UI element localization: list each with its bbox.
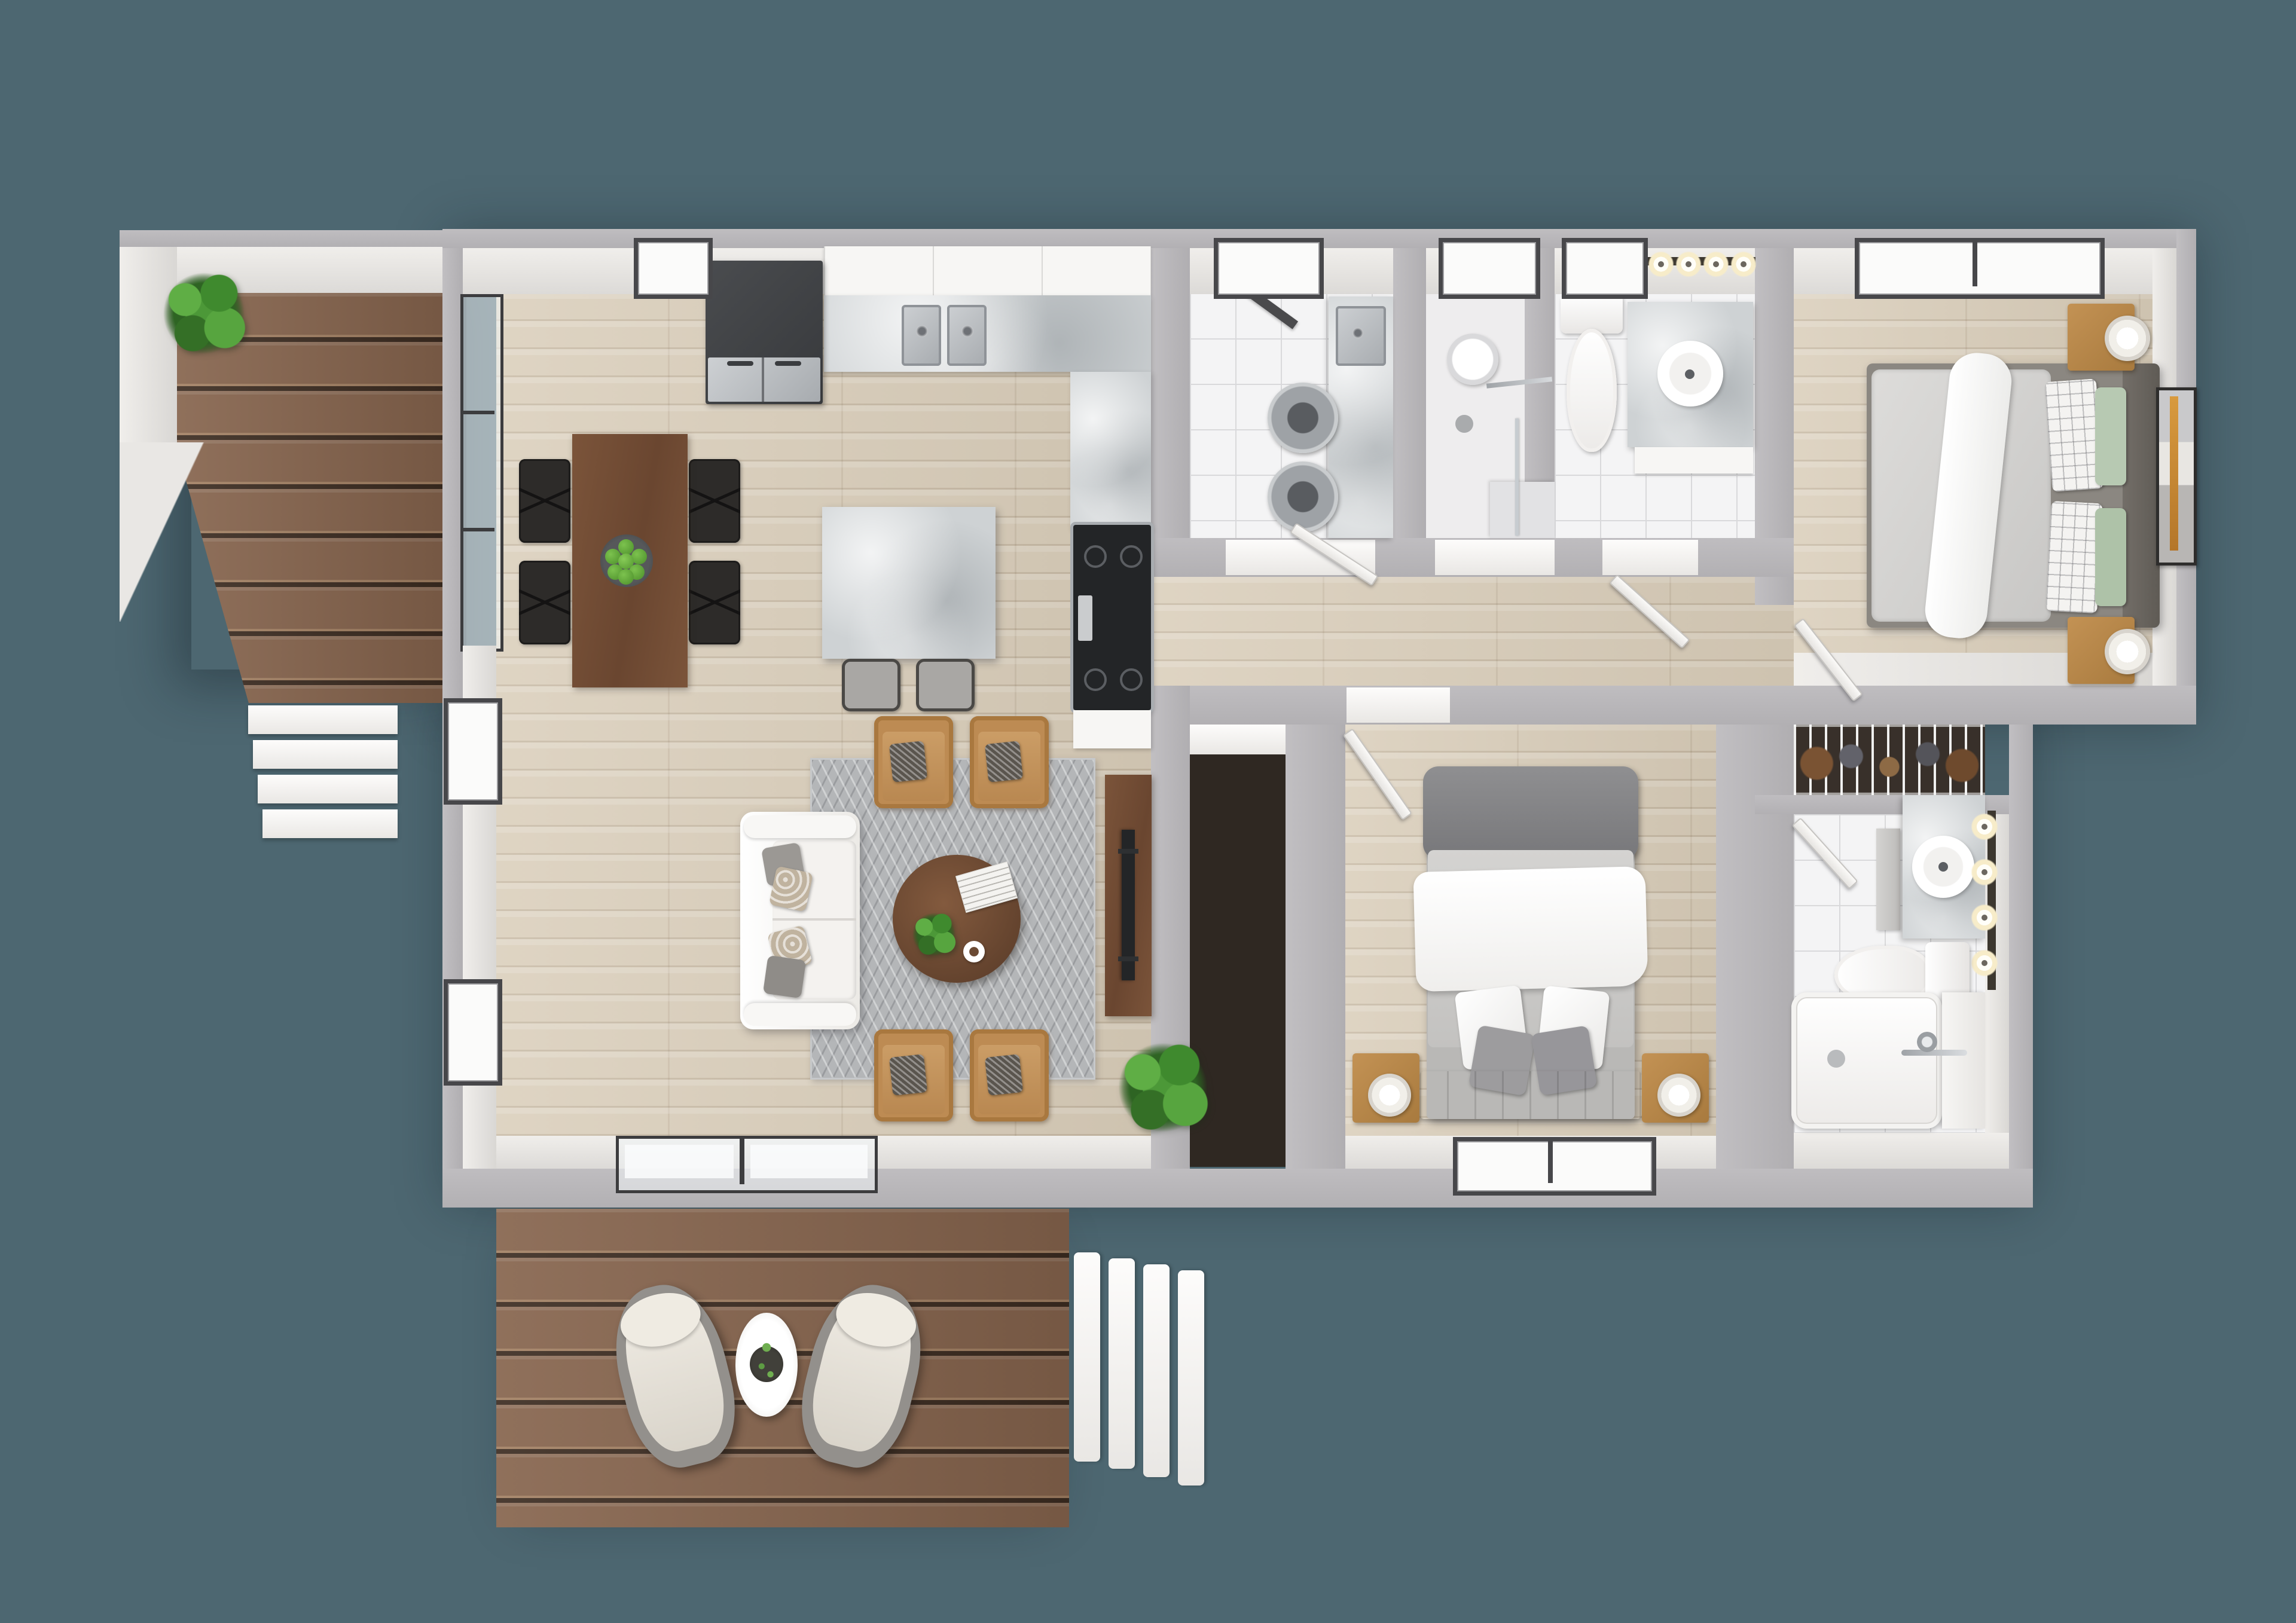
sofa-seat-split [773, 918, 856, 921]
kitchen-faucet [916, 325, 928, 337]
bedroom-second-window [1453, 1137, 1656, 1196]
wall-art-orange-streak [2170, 396, 2178, 551]
bathtub-drain [1827, 1050, 1845, 1068]
slider-mullion [463, 528, 494, 531]
kitchen-cabinet-below-range [1073, 710, 1151, 748]
coffee-cup [963, 941, 985, 962]
vanity-bulb [1703, 251, 1729, 277]
vanity-main-cabinet-front [1635, 447, 1753, 473]
armchair-pillow [985, 741, 1023, 783]
wall-art-abstract [2156, 387, 2197, 566]
table-lamp [2105, 316, 2150, 361]
bed-second-white-sheet [1413, 866, 1648, 992]
rain-shower-head [1447, 334, 1498, 385]
refrigerator [706, 261, 823, 404]
vanity-main-faucet [1685, 369, 1694, 379]
laundry-window [1214, 238, 1324, 299]
stair-step [258, 775, 398, 803]
pillow-sage [2095, 387, 2126, 485]
stair-step [248, 705, 398, 734]
burner [1084, 668, 1107, 691]
pillow-plaid [2045, 501, 2103, 613]
bathtub [1791, 992, 1942, 1129]
green-apple [618, 569, 634, 585]
wall-hall-south [1151, 686, 1794, 725]
round-coffee-table [893, 855, 1021, 983]
range-control-panel [1078, 595, 1092, 641]
vanity-bulb [1971, 858, 1998, 886]
vanity-bulb [1971, 813, 1998, 840]
south-glass-slider [616, 1136, 878, 1193]
vanity-bulb [1730, 251, 1757, 277]
wall-laundry-shower [1393, 248, 1426, 577]
laundry-faucet [1352, 328, 1363, 338]
vanity-bulb [1971, 904, 1998, 931]
stair-step [1109, 1258, 1135, 1469]
wall-east-lower-outer [2009, 686, 2033, 1208]
newspaper [955, 861, 1018, 913]
west-window-2 [444, 979, 502, 1086]
shower-drain [1455, 415, 1473, 433]
bath-opening-sill [1602, 540, 1698, 575]
armchair-pillow [889, 741, 927, 783]
accent-armchair [970, 1029, 1049, 1121]
tub-shower-screen [1942, 992, 1985, 1129]
green-apple [618, 539, 634, 555]
toilet-main [1561, 294, 1623, 457]
table-lamp [2105, 629, 2150, 674]
toilet-bowl [1567, 329, 1617, 452]
coffee-table-plant [909, 910, 958, 959]
wall-bedroom2-bath2 [1716, 725, 1794, 1169]
hallway-floor [1151, 577, 1794, 686]
shower-opening-sill [1435, 540, 1555, 575]
kitchen-counter-side-run [1070, 372, 1151, 528]
refrigerator-door-split [762, 357, 764, 402]
wall-south-inner-bath2 [1779, 1133, 2009, 1169]
table-lamp [1368, 1074, 1411, 1117]
living-floor-plant [1112, 1037, 1214, 1138]
side-deck-wall-corner-bevel [120, 442, 209, 622]
range-cooktop [1073, 525, 1151, 710]
dryer-drum [1268, 461, 1338, 532]
west-glass-slider [460, 294, 503, 652]
tub-faucet [1901, 1050, 1967, 1056]
stair-step [1178, 1270, 1204, 1486]
bed-primary [1867, 363, 2160, 628]
refrigerator-handle [775, 361, 801, 366]
side-deck-stairs [248, 705, 398, 849]
deck-table-plant-sprigs [753, 1337, 781, 1390]
tv-stand-arm [1118, 956, 1138, 961]
fruit-bowl [600, 534, 653, 587]
wall-living-laundry [1151, 248, 1190, 577]
deck-side-table [735, 1313, 798, 1417]
burner [1120, 545, 1143, 568]
sofa-arm-bottom [744, 1003, 856, 1026]
dining-chair [519, 561, 570, 644]
tv-stand-arm [1118, 849, 1138, 854]
white-sofa [740, 812, 860, 1029]
dining-chair [689, 459, 740, 543]
bedroom-primary-window [1855, 238, 2105, 299]
accent-armchair [874, 1029, 953, 1121]
refrigerator-handle [727, 361, 753, 366]
side-deck-wall-left [120, 247, 177, 453]
bed-second-headboard [1419, 1071, 1642, 1119]
armchair-pillow [889, 1054, 927, 1096]
slider-mullion [463, 411, 494, 414]
burner [1120, 668, 1143, 691]
window-mullion [1973, 242, 1977, 286]
table-lamp [1657, 1074, 1700, 1117]
bedroom2-opening-sill [1347, 687, 1450, 723]
linen-closet-wire-shelf [1794, 725, 1985, 795]
slider-inner-pane [625, 1145, 734, 1178]
shower-window [1439, 238, 1540, 299]
tub-faucet-handle [1917, 1032, 1937, 1052]
dining-chair [689, 561, 740, 644]
bath2-wall-cabinets [1876, 829, 1900, 930]
armchair-pillow [985, 1054, 1023, 1096]
stair-step [253, 740, 398, 769]
kitchen-upper-cabinets [824, 246, 1151, 295]
sofa-pillow-gray [763, 955, 806, 998]
accent-armchair [874, 716, 953, 808]
wall-closet-bedroom2 [1286, 725, 1345, 1169]
floor-plan-canvas [0, 0, 2296, 1623]
stair-step [1074, 1252, 1100, 1462]
stair-step [262, 809, 398, 838]
bar-stool [916, 659, 975, 711]
kitchen-faucet [961, 325, 973, 337]
shower-half-wall [1490, 482, 1555, 538]
side-deck-potted-plant [157, 268, 251, 359]
shower-glass-screen [1515, 418, 1519, 536]
rear-deck-stairs [1074, 1252, 1247, 1480]
bed-primary-headboard [2123, 363, 2160, 628]
stair-step [1143, 1264, 1170, 1477]
vanity-bulb [1648, 251, 1674, 277]
burner [1084, 545, 1107, 568]
pillow-sage [2095, 508, 2126, 606]
bar-stool [842, 659, 900, 711]
dining-chair [519, 459, 570, 543]
kitchen-island [822, 507, 996, 659]
side-deck-wall-top-edge [120, 230, 442, 247]
bed-second [1423, 766, 1638, 1125]
bathroom-main-window [1562, 238, 1648, 299]
washer-drum [1268, 383, 1338, 453]
west-window-1 [444, 698, 502, 805]
bed-second-folded-blanket [1423, 766, 1638, 860]
refrigerator-doors [708, 357, 820, 402]
accent-armchair [970, 716, 1049, 808]
toilet-tank [1561, 294, 1623, 334]
kitchen-window [634, 238, 713, 299]
sofa-arm-top [744, 815, 856, 838]
kitchen-counter [824, 295, 1151, 372]
slider-mullion [740, 1139, 744, 1184]
hall-closet-top-shelf [1190, 725, 1286, 754]
slider-inner-pane [750, 1145, 868, 1178]
vanity-second-faucet [1938, 862, 1948, 872]
window-mullion [1548, 1141, 1553, 1183]
vanity-bulb [1675, 251, 1702, 277]
